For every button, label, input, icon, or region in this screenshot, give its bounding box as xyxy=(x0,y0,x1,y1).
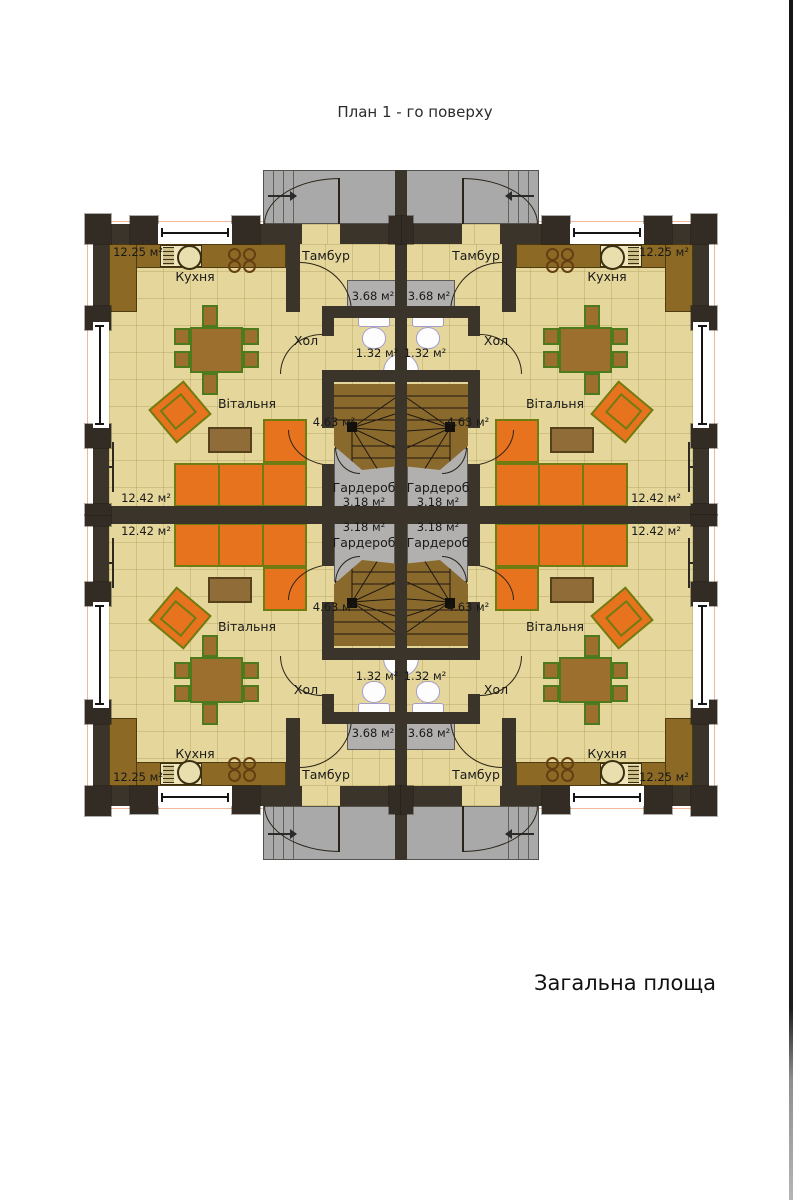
radiator-tick xyxy=(109,562,113,564)
dining-chair xyxy=(243,351,259,368)
window-glazing-tick xyxy=(573,793,575,802)
sofa-cushion-line xyxy=(262,525,264,565)
stove-burner-icon xyxy=(546,769,559,782)
armchair-cushion xyxy=(160,393,198,430)
wall-segment xyxy=(342,786,395,806)
window-glazing-tick xyxy=(161,793,163,802)
hall-area-label: 1.32 м² xyxy=(351,347,403,360)
kitchen-label: Кухня xyxy=(569,747,645,760)
floor-plan-page: План 1 - го поверху xyxy=(0,0,802,1200)
unit-bottom-left: 12.25 м² Кухня Тамбур 3.68 м² Хол 1.32 м… xyxy=(85,515,401,860)
roof-overhang-line xyxy=(714,515,715,809)
window-glazing-tick xyxy=(227,228,229,237)
wall-pilaster xyxy=(542,216,570,244)
window-glazing-tick xyxy=(698,325,707,327)
tambour-area-label: 3.68 м² xyxy=(343,290,403,303)
window xyxy=(93,602,109,708)
wall-pilaster xyxy=(644,786,672,814)
wall-pilaster xyxy=(691,515,717,526)
stove-burner-icon xyxy=(546,757,559,770)
kitchen-label: Кухня xyxy=(157,270,233,283)
living-room-label: Вітальня xyxy=(209,397,285,410)
window-glazing xyxy=(701,605,703,705)
sink-icon xyxy=(600,245,625,270)
stove-burner-icon xyxy=(243,769,256,782)
wc-side-wall xyxy=(468,306,480,336)
wardrobe-area-label: 3.18 м² xyxy=(399,496,477,509)
door-jamb xyxy=(340,786,346,806)
sofa-cushion-line xyxy=(582,465,584,505)
wall-pilaster xyxy=(130,786,158,814)
window-glazing xyxy=(99,605,101,705)
dining-chair xyxy=(202,635,218,657)
sofa-seat xyxy=(495,523,628,567)
entrance-threshold-floor xyxy=(300,224,342,244)
sofa-cushion-line xyxy=(497,461,537,463)
wardrobe-area-label: 3.18 м² xyxy=(325,496,403,509)
dining-table xyxy=(190,657,243,703)
door-jamb xyxy=(500,786,506,806)
wall-pilaster xyxy=(542,786,570,814)
wall-pilaster xyxy=(389,216,401,244)
tambour-label: Тамбур xyxy=(290,249,362,262)
hall-label: Хол xyxy=(281,683,331,696)
wall-segment xyxy=(342,224,395,244)
sofa-cushion-line xyxy=(538,465,540,505)
coffee-table xyxy=(550,427,594,453)
stairs-area-label: 4.63 м² xyxy=(439,601,497,614)
radiator-tick xyxy=(109,466,113,468)
dining-chair xyxy=(612,662,628,679)
window-glazing xyxy=(573,796,641,798)
window-glazing-tick xyxy=(161,228,163,237)
stairs-area-label: 4.63 м² xyxy=(305,416,363,429)
wc-side-wall xyxy=(468,694,480,724)
window-glazing xyxy=(161,232,229,234)
dining-chair xyxy=(584,373,600,395)
window xyxy=(570,224,644,244)
sofa-cushion-line xyxy=(265,567,305,569)
entrance-door-leaf xyxy=(338,178,340,224)
window-glazing xyxy=(99,325,101,425)
dining-chair xyxy=(543,328,559,345)
dining-table xyxy=(559,657,612,703)
stove-burner-icon xyxy=(228,769,241,782)
wardrobe-area-label: 3.18 м² xyxy=(399,521,477,534)
window-glazing-tick xyxy=(95,605,104,607)
corner-pilaster xyxy=(85,214,111,244)
dining-chair xyxy=(612,685,628,702)
wall-pilaster xyxy=(85,515,111,526)
hall-label: Хол xyxy=(471,683,521,696)
door-jamb xyxy=(340,224,346,244)
hall-label: Хол xyxy=(471,334,521,347)
corner-pilaster xyxy=(691,786,717,816)
entrance-door-leaf xyxy=(462,806,464,852)
kitchen-area-label: 12.25 м² xyxy=(633,771,695,784)
dining-chair xyxy=(584,305,600,327)
window-glazing xyxy=(701,325,703,425)
coffee-table xyxy=(550,577,594,603)
wc-bottom-wall xyxy=(322,648,395,660)
tambour-label: Тамбур xyxy=(290,768,362,781)
entrance-door-leaf xyxy=(462,178,464,224)
wc-top-wall xyxy=(334,712,395,724)
wc-side-wall xyxy=(322,694,334,724)
toilet-bowl-icon xyxy=(362,681,386,703)
door-jamb xyxy=(456,786,462,806)
entrance-threshold-floor xyxy=(460,224,502,244)
wc-top-wall xyxy=(407,306,468,318)
sofa-cushion-line xyxy=(218,465,220,505)
dining-chair xyxy=(612,328,628,345)
window xyxy=(158,224,232,244)
kitchen-area-label: 12.25 м² xyxy=(107,246,169,259)
sofa-cushion-line xyxy=(218,525,220,565)
hall-area-label: 1.32 м² xyxy=(399,347,451,360)
armchair-cushion xyxy=(160,600,198,637)
stove-burner-icon xyxy=(243,260,256,273)
armchair-cushion xyxy=(605,600,643,637)
dining-chair xyxy=(543,685,559,702)
wardrobe-label: Гардероб xyxy=(325,536,403,549)
door-jamb xyxy=(296,224,302,244)
sofa-cushion-line xyxy=(582,525,584,565)
window-glazing-tick xyxy=(95,423,104,425)
corner-pilaster xyxy=(85,786,111,816)
dining-chair xyxy=(243,662,259,679)
wall-pilaster xyxy=(232,786,260,814)
stairs-area-label: 4.63 м² xyxy=(305,601,363,614)
wc-bottom-wall xyxy=(407,648,480,660)
dining-chair xyxy=(243,685,259,702)
dining-chair xyxy=(202,305,218,327)
sink-icon xyxy=(600,760,625,785)
stove-burner-icon xyxy=(546,260,559,273)
sink-icon xyxy=(177,760,202,785)
tambour-area-label: 3.68 м² xyxy=(343,727,403,740)
dining-table xyxy=(190,327,243,373)
window xyxy=(93,322,109,428)
dining-chair xyxy=(202,373,218,395)
entrance-threshold-floor xyxy=(460,786,502,806)
sofa-seat xyxy=(174,523,307,567)
sofa-seat xyxy=(495,463,628,507)
window-glazing-tick xyxy=(95,703,104,705)
dining-chair xyxy=(174,351,190,368)
total-area-label: Загальна площа xyxy=(534,971,716,995)
wall-pilaster xyxy=(401,216,413,244)
page-title: План 1 - го поверху xyxy=(337,103,492,121)
dining-chair xyxy=(243,328,259,345)
dining-chair xyxy=(612,351,628,368)
window-glazing xyxy=(161,796,229,798)
window-glazing-tick xyxy=(639,793,641,802)
window-glazing xyxy=(573,232,641,234)
door-jamb xyxy=(456,224,462,244)
wall-segment xyxy=(407,786,460,806)
coffee-table xyxy=(208,577,252,603)
dining-table xyxy=(559,327,612,373)
unit-top-left: 12.25 м² Кухня Тамбур 3.68 м² Хол 1.32 м… xyxy=(85,170,401,515)
window-glazing-tick xyxy=(573,228,575,237)
roof-overhang-line xyxy=(714,221,715,515)
tambour-area-label: 3.68 м² xyxy=(399,290,459,303)
door-jamb xyxy=(500,224,506,244)
kitchen-label: Кухня xyxy=(157,747,233,760)
living-area-label: 12.42 м² xyxy=(115,492,177,505)
stairs-area-label: 4.63 м² xyxy=(439,416,497,429)
wardrobe-area-label: 3.18 м² xyxy=(325,521,403,534)
wall-pilaster xyxy=(232,216,260,244)
dining-chair xyxy=(174,662,190,679)
living-area-label: 12.42 м² xyxy=(115,525,177,538)
tambour-label: Тамбур xyxy=(440,768,512,781)
window-glazing-tick xyxy=(698,605,707,607)
stove-burner-icon xyxy=(561,769,574,782)
wardrobe-label: Гардероб xyxy=(399,536,477,549)
hall-area-label: 1.32 м² xyxy=(399,670,451,683)
sofa-cushion-line xyxy=(538,525,540,565)
window-glazing-tick xyxy=(698,703,707,705)
entrance-door-leaf xyxy=(338,806,340,852)
window-glazing-tick xyxy=(95,325,104,327)
living-room-label: Вітальня xyxy=(517,620,593,633)
dining-chair xyxy=(202,703,218,725)
kitchen-label: Кухня xyxy=(569,270,645,283)
sofa-seat xyxy=(174,463,307,507)
wall-pilaster xyxy=(85,504,111,515)
living-area-label: 12.42 м² xyxy=(625,492,687,505)
wall-pilaster xyxy=(691,504,717,515)
window-glazing-tick xyxy=(639,228,641,237)
tambour-area-label: 3.68 м² xyxy=(399,727,459,740)
roof-overhang-line xyxy=(87,221,88,515)
wall-pilaster xyxy=(644,216,672,244)
page-edge-line xyxy=(789,0,793,1200)
kitchen-area-label: 12.25 м² xyxy=(633,246,695,259)
living-room-label: Вітальня xyxy=(209,620,285,633)
unit-bottom-right: 12.25 м² Кухня Тамбур 3.68 м² Хол 1.32 м… xyxy=(401,515,717,860)
wc-side-wall xyxy=(322,306,334,336)
dining-chair xyxy=(543,662,559,679)
tambour-label: Тамбур xyxy=(440,249,512,262)
coffee-table xyxy=(208,427,252,453)
living-room-label: Вітальня xyxy=(517,397,593,410)
sofa-cushion-line xyxy=(497,567,537,569)
toilet-bowl-icon xyxy=(416,681,440,703)
entrance-threshold-floor xyxy=(300,786,342,806)
sink-icon xyxy=(177,245,202,270)
dining-chair xyxy=(584,635,600,657)
wall-pilaster xyxy=(389,786,401,814)
wall-segment xyxy=(407,224,460,244)
wc-top-wall xyxy=(334,306,395,318)
window-glazing-tick xyxy=(227,793,229,802)
door-jamb xyxy=(296,786,302,806)
corner-pilaster xyxy=(691,214,717,244)
sofa-cushion-line xyxy=(265,461,305,463)
wall-pilaster xyxy=(130,216,158,244)
hall-label: Хол xyxy=(281,334,331,347)
unit-top-right: 12.25 м² Кухня Тамбур 3.68 м² Хол 1.32 м… xyxy=(401,170,717,515)
dining-chair xyxy=(174,685,190,702)
dining-chair xyxy=(584,703,600,725)
hall-area-label: 1.32 м² xyxy=(351,670,403,683)
wc-top-wall xyxy=(407,712,468,724)
armchair-cushion xyxy=(605,393,643,430)
wall-pilaster xyxy=(401,786,413,814)
stove-burner-icon xyxy=(243,757,256,770)
wc-bottom-wall xyxy=(407,370,480,382)
wc-bottom-wall xyxy=(322,370,395,382)
roof-overhang-line xyxy=(87,515,88,809)
sofa-cushion-line xyxy=(262,465,264,505)
living-area-label: 12.42 м² xyxy=(625,525,687,538)
kitchen-area-label: 12.25 м² xyxy=(107,771,169,784)
wardrobe-label: Гардероб xyxy=(399,481,477,494)
dining-chair xyxy=(174,328,190,345)
dining-chair xyxy=(543,351,559,368)
window-glazing-tick xyxy=(698,423,707,425)
wardrobe-label: Гардероб xyxy=(325,481,403,494)
